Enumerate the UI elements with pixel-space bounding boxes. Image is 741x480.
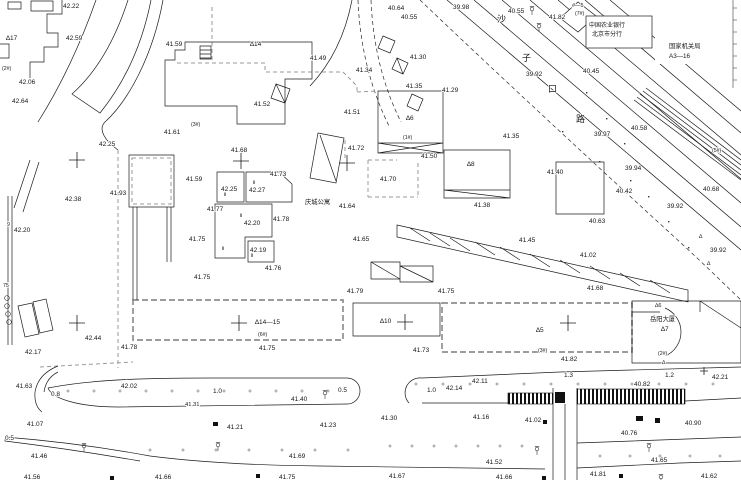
- map-label: ∆7: [661, 326, 669, 333]
- map-label: 40.82: [634, 381, 651, 388]
- sidewalk-dot: [388, 444, 391, 447]
- map-label: 40.45: [583, 68, 600, 75]
- tree-icon: [659, 475, 663, 480]
- map-label: 41.40: [291, 396, 308, 403]
- map-label: ∆5: [536, 327, 544, 334]
- map-label: 41.02: [580, 252, 597, 259]
- road-name-char: 路: [576, 113, 585, 124]
- sidewalk-dot: [688, 454, 691, 457]
- map-label: 41.62: [701, 473, 718, 480]
- road-dot: [688, 247, 689, 248]
- fence-line: [733, 0, 737, 88]
- sidewalk-dot: [549, 382, 552, 385]
- tree-icon: [537, 24, 541, 32]
- tree-icon: [647, 444, 651, 452]
- sidewalk-dot: [711, 382, 714, 385]
- map-label: 41.56: [24, 474, 41, 480]
- sidewalk-dot: [92, 389, 95, 392]
- map-label: 40.42: [616, 188, 633, 195]
- road-name-char: 沙: [497, 14, 506, 24]
- map-label: 42.06: [19, 79, 36, 86]
- map-label: 39.92: [667, 203, 684, 210]
- map-label: 39.98: [453, 4, 470, 11]
- map-label: Ⅱ: [251, 253, 253, 259]
- sidewalk-dot: [598, 454, 601, 457]
- survey-cross-icon: [339, 155, 355, 171]
- map-label: 41.64: [339, 203, 356, 210]
- map-label: 42.11: [472, 378, 488, 385]
- map-label: 41.93: [110, 190, 127, 197]
- map-label: 41.45: [519, 237, 536, 244]
- road-dot: [624, 143, 625, 144]
- map-label: 41.23: [320, 422, 337, 429]
- map-label: 42.20: [244, 220, 261, 227]
- map-label: 40.76: [621, 430, 638, 437]
- map-label: 41.21: [227, 424, 244, 431]
- map-label: 0.5: [338, 387, 347, 394]
- map-label: 41.30: [410, 54, 427, 61]
- survey-crosses: [69, 152, 708, 375]
- crosswalk-hatch-large: [577, 389, 685, 404]
- map-label: ∆17: [6, 35, 18, 42]
- map-label: 42.25: [99, 141, 116, 148]
- map-label: 42.02: [121, 383, 138, 390]
- sidewalk-dot: [522, 382, 525, 385]
- tree-icon: [323, 391, 327, 399]
- road-dot: [586, 92, 587, 93]
- map-label: 39.97: [594, 131, 611, 138]
- tree-icon: [216, 443, 220, 451]
- map-label: 0.8: [51, 391, 60, 398]
- map-label: A3—16: [669, 53, 691, 60]
- map-label: 41.68: [587, 285, 604, 292]
- sidewalk-dot: [603, 382, 606, 385]
- map-label: 42.22: [63, 3, 80, 10]
- map-label: 中国农业银行: [589, 21, 625, 29]
- map-label: 41.59: [186, 176, 203, 183]
- map-label: 39.94: [625, 165, 642, 172]
- step-blocks: [371, 262, 433, 282]
- sidewalk-dot: [718, 454, 721, 457]
- map-label: 1.2: [665, 372, 674, 379]
- map-label: 41.73: [270, 171, 287, 178]
- map-label: 40.55: [401, 14, 418, 21]
- map-label: 41.38: [474, 202, 491, 209]
- survey-cross-icon: [69, 315, 85, 331]
- survey-cross-icon: [397, 314, 413, 330]
- map-label: 41.82: [549, 14, 566, 21]
- map-label: ∆8: [467, 161, 475, 168]
- map-label: 41.46: [31, 453, 48, 460]
- bottom-roads: [5, 366, 741, 480]
- tree-icon: [535, 447, 539, 455]
- road-dot: [599, 161, 600, 162]
- building-14-15-outline: [133, 300, 343, 340]
- road-dot: [630, 180, 631, 181]
- map-label: 75: [3, 283, 9, 289]
- map-label: 41.68: [231, 147, 248, 154]
- map-label: 41.65: [651, 457, 668, 464]
- map-label: Ⅱ: [222, 246, 224, 252]
- map-label: 41.63: [16, 383, 33, 390]
- map-label: 41.75: [438, 288, 455, 295]
- map-label: 41.66: [496, 474, 513, 480]
- map-label: 1.0: [427, 387, 436, 394]
- tower-outline: [632, 301, 741, 363]
- small-building-left-1: [18, 303, 39, 337]
- small-building-left-2: [33, 299, 53, 333]
- building-14-outline: [165, 42, 312, 124]
- map-label: ∆: [699, 234, 703, 240]
- map-label: 41.49: [310, 55, 327, 62]
- map-label: 41.79: [347, 288, 364, 295]
- map-label: 41.52: [486, 459, 503, 466]
- tree-icon: [530, 7, 534, 15]
- site-plan-svg: 沙子口路 42.2240.6440.5539.9840.5541.82#—5(7…: [0, 0, 741, 480]
- sidewalk-dot: [628, 454, 631, 457]
- map-label: 41.75: [259, 345, 276, 352]
- building-10-outline: [353, 303, 440, 336]
- map-label: ∆14—15: [255, 319, 280, 326]
- map-label: 41.66: [155, 474, 172, 480]
- map-label: Ⅱ: [240, 213, 242, 219]
- sidewalk-dot: [313, 448, 316, 451]
- sidewalk-dot: [248, 389, 251, 392]
- map-label: 41.50: [421, 153, 438, 160]
- map-label: 41.40: [547, 169, 564, 176]
- tree-icon: [82, 444, 86, 452]
- map-label: 41.16: [473, 414, 490, 421]
- road-name-char: 口: [548, 84, 557, 94]
- road-name-char: 子: [522, 53, 531, 63]
- slanted-building: [310, 133, 344, 183]
- map-label: 41.61: [164, 129, 181, 136]
- map-label: 42.27: [249, 187, 266, 194]
- map-label: 41.67: [389, 473, 406, 480]
- building-8-outline: [444, 150, 510, 198]
- map-label: 41.02: [525, 417, 542, 424]
- sidewalk-dot: [196, 389, 199, 392]
- map-label: 42.17: [25, 349, 42, 356]
- sidewalk-dot: [684, 382, 687, 385]
- map-label: 42.59: [66, 35, 83, 42]
- map-label: 40.58: [631, 125, 648, 132]
- map-label: 41.35: [406, 83, 423, 90]
- survey-cross-icon: [560, 315, 576, 331]
- sidewalk-dot: [410, 444, 413, 447]
- sidewalk-dot: [181, 448, 184, 451]
- map-label: 41.30: [381, 415, 398, 422]
- sidewalk-dot: [520, 444, 523, 447]
- map-label: 北京市分行: [592, 30, 622, 38]
- map-label: (1#): [403, 135, 412, 141]
- map-label: #—5: [572, 3, 584, 9]
- map-label: (6#): [258, 332, 267, 338]
- sidewalk-dot: [657, 382, 660, 385]
- map-label: 42.64: [12, 98, 29, 105]
- map-label: ∆14: [250, 41, 262, 48]
- map-label: 41.52: [254, 101, 271, 108]
- crosswalk-hatch-small: [508, 393, 553, 404]
- map-label: 40.64: [388, 5, 405, 12]
- map-label: (7#): [575, 11, 584, 17]
- map-label: 41.76: [265, 265, 282, 272]
- map-label: 42.21: [712, 374, 729, 381]
- map-label: 41.31: [185, 402, 200, 408]
- map-label: 41.75: [194, 274, 211, 281]
- sidewalk-dot: [495, 382, 498, 385]
- map-label: 9: [7, 222, 10, 228]
- map-label: 1.3: [564, 372, 573, 379]
- map-label: Ⅱ: [253, 180, 255, 186]
- map-label: (2#): [2, 66, 11, 72]
- sidewalk-dot: [247, 448, 250, 451]
- sidewalk-dot: [66, 389, 69, 392]
- map-label: 42.38: [65, 196, 82, 203]
- road-dot: [668, 221, 669, 222]
- map-label: 41.51: [344, 109, 361, 116]
- map-label: 41.34: [356, 67, 373, 74]
- map-label: ∆10: [380, 318, 392, 325]
- map-label: (2#): [658, 351, 667, 357]
- sidewalk-dot: [300, 389, 303, 392]
- sidewalk-dot: [576, 382, 579, 385]
- map-label: ∆6: [655, 303, 661, 309]
- survey-cross-icon: [231, 315, 247, 331]
- map-label: 41.70: [380, 176, 397, 183]
- map-label: (3#): [191, 122, 200, 128]
- sidewalk-dot: [222, 389, 225, 392]
- survey-cross-icon: [69, 152, 85, 168]
- map-label: 41.69: [289, 453, 306, 460]
- site-plan-page: 沙子口路 42.2240.6440.5539.9840.5541.82#—5(7…: [0, 0, 741, 480]
- elevation-labels: 42.2240.6440.5539.9840.5541.82#—5(7#)中国农…: [2, 3, 729, 480]
- map-label: 41.75: [189, 236, 206, 243]
- sidewalk-dot: [274, 389, 277, 392]
- map-label: 41.07: [27, 421, 44, 428]
- northwest-roads: [0, 0, 163, 345]
- map-label: 41.72: [348, 145, 365, 152]
- map-label: 40.90: [685, 420, 702, 427]
- map-label: 41.65: [353, 236, 370, 243]
- map-label: 42.20: [14, 227, 31, 234]
- map-label: 41.75: [279, 474, 296, 480]
- map-label: 0.5: [5, 435, 14, 442]
- sidewalk-dot: [346, 448, 349, 451]
- map-label: (3#): [538, 348, 547, 354]
- sidewalk-dot: [148, 448, 151, 451]
- tree-symbols: [82, 7, 663, 480]
- building-6-outline: [378, 91, 443, 153]
- building-11-outline: [129, 155, 174, 300]
- road-dot: [606, 118, 607, 119]
- map-label: 庆城公寓: [305, 197, 330, 206]
- sidewalk-dot: [214, 448, 217, 451]
- survey-cross-icon: [233, 153, 249, 169]
- map-label: 41.78: [121, 344, 138, 351]
- map-label: 41.29: [442, 87, 459, 94]
- map-label: 41.59: [166, 41, 183, 48]
- sidewalk-dot: [280, 448, 283, 451]
- map-label: Ⅱ: [224, 192, 226, 198]
- stairs-icon: [200, 46, 211, 59]
- map-label: 1.0: [213, 388, 222, 395]
- map-label: ∆6: [406, 115, 414, 122]
- map-label: 39.92: [710, 247, 727, 254]
- map-label: 41.78: [273, 216, 290, 223]
- sidewalk-dot: [441, 382, 444, 385]
- map-label: ∆: [707, 261, 711, 267]
- sidewalk-dot: [170, 389, 173, 392]
- map-label: 40.63: [589, 218, 606, 225]
- map-label: 国家机关局: [669, 41, 700, 50]
- map-label: 40.55: [508, 8, 525, 15]
- road-dot: [648, 196, 649, 197]
- sidewalk-dot: [476, 444, 479, 447]
- sidewalk-dot: [498, 444, 501, 447]
- sidewalk-dot: [414, 382, 417, 385]
- map-label: 41.73: [413, 347, 430, 354]
- sidewalk-dot: [432, 444, 435, 447]
- map-label: 41.82: [561, 356, 578, 363]
- map-label: 42.44: [85, 335, 102, 342]
- map-label: 41.35: [503, 133, 520, 140]
- sidewalk-dot: [144, 389, 147, 392]
- sidewalk-dot: [454, 444, 457, 447]
- map-label: 39.92: [526, 71, 543, 78]
- map-label: 40.68: [703, 186, 720, 193]
- map-label: 42.14: [446, 385, 463, 392]
- map-label: (5#): [712, 148, 721, 154]
- map-label: 41.77: [207, 206, 224, 213]
- map-label: 岳阳大厦: [650, 314, 676, 323]
- road-dot: [562, 131, 563, 132]
- map-label: 41.81: [590, 471, 607, 478]
